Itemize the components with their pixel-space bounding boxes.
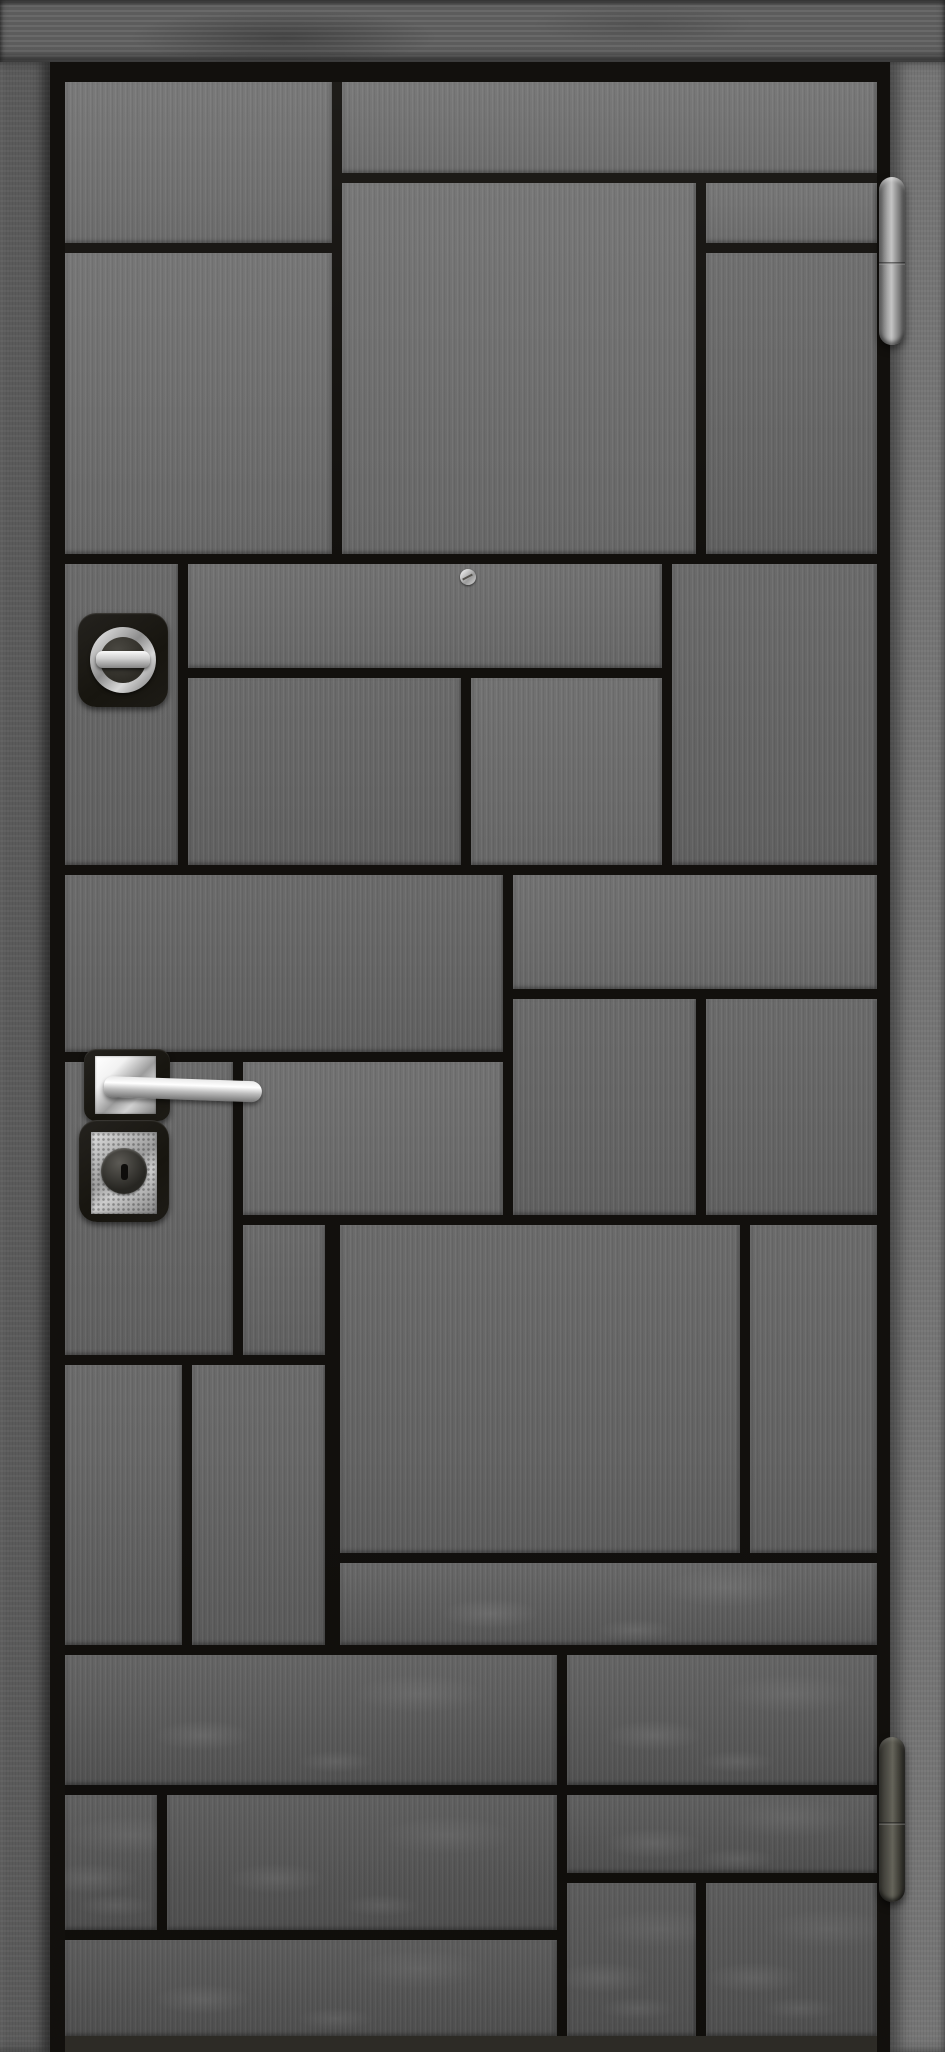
- door-panel: [65, 1365, 182, 1645]
- door-bottom-edge: [65, 2036, 877, 2052]
- door-panel: [706, 183, 877, 243]
- top-hinge: [879, 177, 905, 345]
- door-panel: [192, 1365, 325, 1645]
- door-panel: [65, 82, 332, 243]
- door-photo: [0, 0, 945, 2052]
- door-panel: [567, 1883, 696, 2036]
- door-panel: [567, 1655, 877, 1785]
- hinge-seam: [879, 262, 905, 265]
- door-panel: [243, 1225, 325, 1355]
- thumbturn-knob: [96, 651, 150, 668]
- door-panel: [706, 253, 877, 554]
- door-panel: [65, 253, 332, 554]
- door-panel: [342, 82, 877, 173]
- door-panel: [243, 1062, 503, 1215]
- door-panel: [706, 999, 877, 1215]
- door-panel: [65, 1655, 557, 1785]
- peephole-screw: [460, 569, 476, 585]
- door-panel: [167, 1795, 557, 1930]
- door-panel: [65, 1940, 557, 2036]
- door-panel: [342, 183, 696, 554]
- door-panel: [340, 1563, 877, 1645]
- door-panel: [513, 875, 877, 989]
- keyhole: [121, 1164, 128, 1180]
- door-panel: [188, 564, 662, 668]
- door-panel: [340, 1225, 740, 1553]
- door-panel: [471, 678, 662, 865]
- door-panel: [567, 1795, 877, 1873]
- door-panel: [65, 1795, 157, 1930]
- door-panel: [188, 678, 461, 865]
- door-panel: [672, 564, 877, 865]
- bottom-hinge: [879, 1737, 905, 1902]
- door-panel: [513, 999, 696, 1215]
- door-panel: [706, 1883, 877, 2036]
- door-panel: [750, 1225, 877, 1553]
- door-panel: [65, 564, 178, 865]
- hinge-seam: [879, 1822, 905, 1825]
- door-face: [0, 0, 945, 2052]
- door-panel: [65, 875, 503, 1052]
